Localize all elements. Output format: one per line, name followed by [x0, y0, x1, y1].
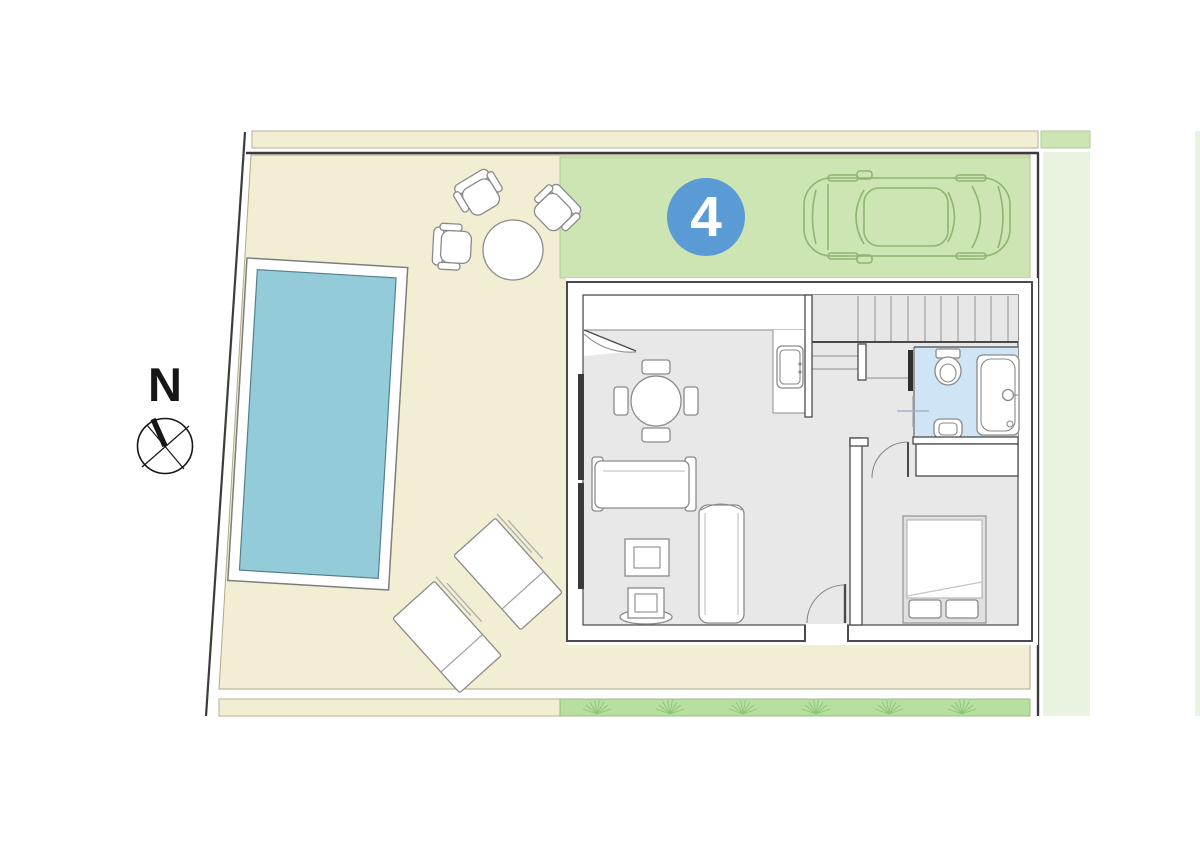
toilet-icon	[935, 349, 961, 385]
sliding-door-icon	[908, 350, 913, 391]
wall-bedroom	[850, 438, 862, 625]
tv-table	[625, 539, 669, 576]
house	[566, 278, 1038, 645]
site-plan: 4 N	[0, 0, 1200, 848]
wall-bathroom-south	[913, 437, 1018, 444]
wardrobe	[916, 444, 1018, 476]
wall-bedroom-stub	[850, 438, 868, 446]
armchair	[620, 588, 672, 624]
sofa	[592, 457, 696, 511]
washbasin-icon	[934, 419, 962, 438]
unit-badge-number: 4	[666, 187, 746, 247]
top-strip-terrace	[252, 131, 1090, 148]
site-plan-canvas	[0, 0, 1200, 848]
compass-icon	[138, 419, 193, 474]
swimming-pool	[228, 258, 408, 590]
wall-stub-hall	[858, 344, 866, 380]
far-right-strip	[1195, 131, 1200, 716]
bottom-path-strip	[219, 699, 1030, 716]
kitchen-sink-icon	[777, 346, 803, 388]
compass-label: N	[121, 362, 209, 408]
bathtub-icon	[977, 355, 1019, 435]
bed	[903, 516, 986, 623]
right-outside-strip	[1043, 152, 1090, 716]
chaise-unit	[699, 504, 744, 623]
bathroom	[897, 347, 1019, 444]
wall-kitchen-stairs	[805, 295, 812, 417]
